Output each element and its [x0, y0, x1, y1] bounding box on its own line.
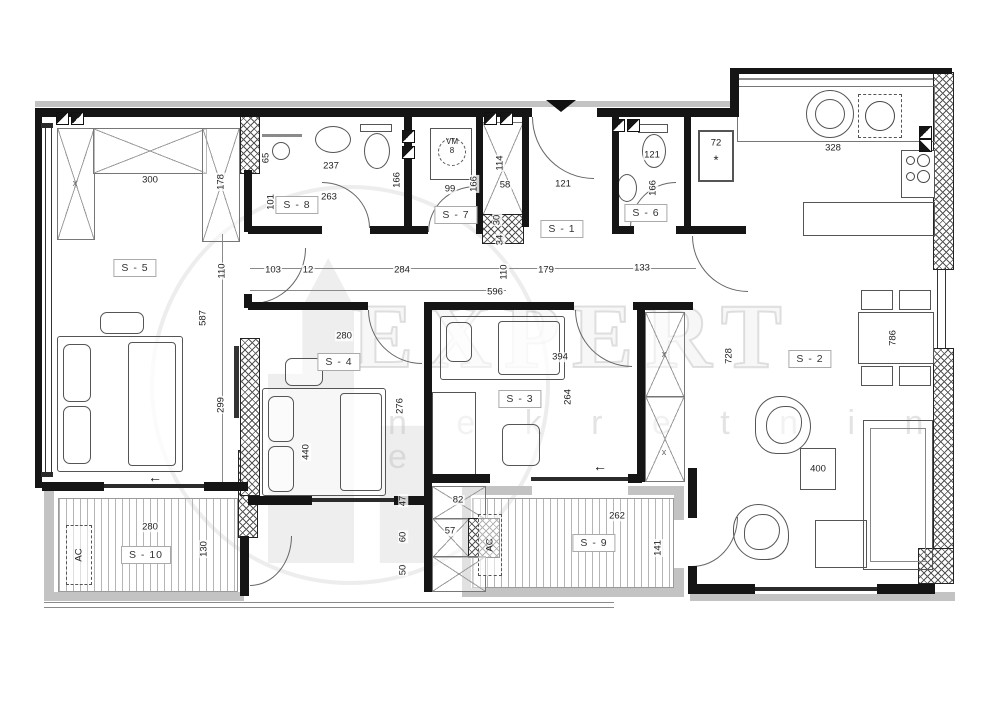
dim-s9-width: 262 [608, 511, 626, 521]
door-arc [575, 310, 632, 367]
blanket [340, 393, 382, 491]
wall [637, 310, 645, 482]
dining-chair [861, 366, 893, 386]
blanket [498, 321, 560, 375]
dim-entrance-door: 121 [554, 179, 572, 189]
dim-s7: 99 [444, 184, 457, 194]
shower-head [272, 142, 290, 160]
slide-direction-icon: ← [148, 470, 162, 484]
room-label-s9: S - 9 [572, 534, 615, 552]
ac-label: AC [74, 547, 84, 562]
dim-s4: 280 [335, 331, 353, 341]
wardrobe [93, 128, 207, 174]
burner-icon [906, 156, 915, 165]
wall [204, 482, 248, 491]
dim-hall: 133 [633, 263, 651, 273]
dim-s8: 101 [266, 193, 276, 211]
dim-shaft: 30 [492, 214, 502, 227]
dim-wardrobe-depth: 178 [216, 173, 226, 191]
wall [42, 482, 104, 491]
dim-coffee-table: 400 [809, 464, 827, 474]
dim-s6: 121 [643, 150, 661, 160]
duct-marker-icon [71, 112, 84, 125]
washing-machine-label: VM 8 [446, 138, 458, 156]
dim-hall: 12 [302, 265, 315, 275]
wall [688, 566, 697, 594]
dim-line [250, 268, 696, 269]
wall [424, 302, 574, 310]
window [45, 128, 52, 476]
room-label-s4: S - 4 [317, 353, 360, 371]
sofa-chaise [815, 520, 867, 568]
dim-s8: 263 [320, 192, 338, 202]
insulated-wall [933, 72, 954, 270]
wall [633, 302, 693, 310]
wall-line [737, 78, 952, 80]
wall [684, 117, 691, 232]
duct-marker-icon [500, 112, 513, 125]
dim-s9-depth: 141 [653, 539, 663, 557]
dim-nook: 50 [398, 564, 408, 577]
dim-nook: 60 [398, 531, 408, 544]
room-label-s2: S - 2 [788, 350, 831, 368]
door-arc [368, 310, 422, 364]
wall [412, 226, 428, 234]
duct-marker-icon [919, 139, 932, 152]
wall [35, 108, 42, 488]
duct-marker-icon [919, 126, 932, 139]
dim-s4-bed: 440 [301, 443, 311, 461]
window-sill [41, 123, 53, 128]
dim-s8: 166 [392, 171, 402, 189]
ac-label: AC [485, 537, 495, 552]
duct-marker-icon [484, 112, 497, 125]
sliding-door [755, 587, 877, 591]
window [937, 268, 946, 348]
wall [424, 310, 432, 482]
slide-direction-icon: ← [593, 459, 607, 473]
toilet-bowl [364, 133, 390, 169]
room-label-s6: S - 6 [624, 204, 667, 222]
dim-hall: 179 [537, 265, 555, 275]
burner-icon [917, 154, 930, 167]
dim-s3: 394 [551, 352, 569, 362]
dim-s10-width: 280 [141, 522, 159, 532]
sink [315, 126, 351, 153]
room-label-s3: S - 3 [498, 390, 541, 408]
entrance-arrow-icon [546, 100, 576, 112]
dim-s6: 166 [648, 179, 658, 197]
dim-closet: 58 [499, 180, 512, 190]
wardrobe-mark: x [73, 178, 78, 188]
dim-hall: 103 [264, 265, 282, 275]
wall [248, 496, 312, 505]
pillow [268, 396, 294, 442]
door-arc [322, 182, 370, 228]
wardrobe-mark: x [662, 447, 667, 457]
terrace-wall [44, 592, 244, 601]
balcony-rail [44, 607, 614, 608]
wall [612, 117, 619, 232]
dim-s4: 276 [395, 397, 405, 415]
wall [370, 226, 406, 234]
pillow [63, 406, 91, 464]
dim-shower: 65 [261, 152, 271, 165]
dim-closet: 114 [495, 154, 505, 171]
shaft-size: 72 [710, 138, 723, 148]
wall [244, 170, 252, 232]
dining-chair [861, 290, 893, 310]
dim-hall: 110 [499, 263, 509, 280]
dim-hall-total: 596 [486, 287, 504, 297]
wall [877, 584, 935, 594]
blanket [128, 342, 176, 466]
duct-marker-icon [402, 146, 415, 159]
wall [522, 117, 529, 227]
room-label-s7: S - 7 [434, 206, 477, 224]
shower-bar [262, 134, 302, 137]
wall [35, 108, 532, 117]
door-arc [250, 536, 292, 586]
pillow [63, 344, 91, 402]
shaft [240, 112, 260, 174]
pillow [268, 446, 294, 492]
dishwasher-icon [865, 101, 895, 131]
sliding-door [531, 477, 628, 481]
wardrobe [645, 396, 685, 482]
sofa-seat [870, 428, 926, 562]
wall [597, 108, 737, 117]
wardrobe-mark: x [662, 349, 667, 359]
wall [697, 584, 755, 594]
floor-plan: EXPERT n e k r e t n i n e x 300 178 S -… [0, 0, 1000, 706]
terrace-wall [674, 486, 684, 520]
dim-s5: 110 [217, 262, 227, 279]
balcony-rail [44, 602, 614, 603]
dim-s5-length: 587 [198, 309, 208, 327]
door-arc [692, 236, 748, 292]
room-label-s8: S - 8 [275, 196, 318, 214]
dim-wardrobe-width: 300 [141, 175, 159, 185]
kitchen-island [803, 202, 935, 236]
cabinet [432, 518, 470, 558]
terrace-wall [462, 588, 684, 597]
nightstand [100, 312, 144, 334]
duct-marker-icon [56, 112, 69, 125]
top-facade-band [35, 101, 737, 107]
desk-chair [502, 424, 540, 466]
wall [688, 468, 697, 518]
room-label-s5: S - 5 [113, 259, 156, 277]
sink [617, 174, 637, 202]
dim-cabinet: 57 [444, 526, 457, 536]
dim-s7: 166 [469, 175, 479, 193]
duct-marker-icon [612, 119, 625, 132]
dim-s5-width: 299 [216, 396, 226, 414]
terrace-wall [44, 488, 54, 600]
entrance-door-arc [532, 117, 594, 179]
dim-shaft: 34 [495, 234, 505, 247]
wall [432, 474, 490, 483]
toilet-tank [638, 124, 668, 133]
tv [234, 346, 239, 418]
insulated-wall [240, 338, 260, 496]
duct-marker-icon [402, 130, 415, 143]
dim-s8: 237 [322, 161, 340, 171]
dining-chair [899, 290, 931, 310]
dining-chair [899, 366, 931, 386]
burner-icon [906, 172, 915, 181]
wall [737, 68, 952, 74]
wall [248, 302, 368, 310]
wall [248, 226, 322, 234]
burner-icon [917, 170, 930, 183]
desk [432, 392, 476, 478]
washing-machine-label-bottom: 8 [446, 147, 458, 156]
insulated-wall [933, 348, 954, 550]
room-label-s10: S - 10 [121, 546, 171, 564]
window-sill [41, 472, 53, 477]
dim-line [250, 290, 506, 291]
wall [612, 226, 634, 234]
dim-nook: 47 [398, 495, 408, 508]
wall [424, 482, 432, 592]
kitchen-sink-basin [815, 99, 845, 129]
dim-dining-table: 786 [888, 329, 898, 347]
pillow [446, 322, 472, 362]
door-arc [692, 517, 738, 567]
wall [684, 226, 746, 234]
dim-s2-length: 728 [724, 347, 734, 365]
dim-kitchen: 328 [824, 143, 842, 153]
wall [240, 536, 249, 596]
toilet-tank [360, 124, 392, 132]
dim-s3: 264 [563, 388, 573, 406]
facade-band [690, 594, 955, 601]
dim-cabinet: 82 [452, 495, 465, 505]
dim-hall: 284 [393, 265, 411, 275]
dim-s10-depth: 130 [199, 540, 209, 558]
wall [730, 68, 739, 117]
room-label-s1: S - 1 [540, 220, 583, 238]
duct-marker-icon [627, 119, 640, 132]
sliding-door [312, 498, 394, 502]
shaft-mark: * [712, 154, 719, 167]
door-arc [252, 248, 306, 304]
